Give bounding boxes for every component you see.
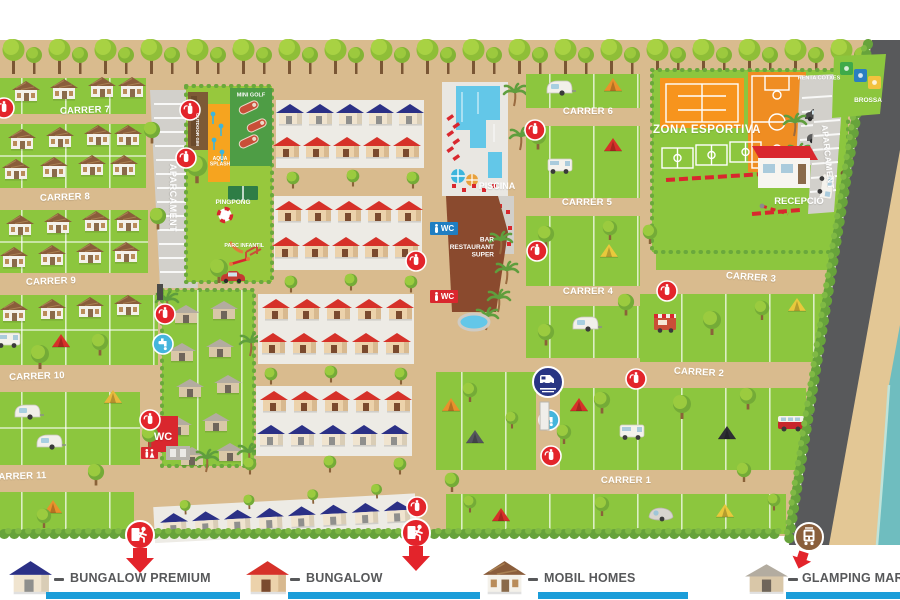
water-tap-icon: [153, 334, 173, 354]
parking-left-label: APARCAMENT: [168, 155, 178, 241]
kids-pool: [488, 152, 502, 178]
beach-ball: [219, 209, 232, 222]
brossa-label: BROSSA: [842, 96, 894, 104]
legend-label-glamping-mar: GLAMPING MAR: [802, 571, 900, 585]
fire-extinguisher-icon: [176, 148, 196, 168]
fire-extinguisher-icon: [527, 241, 547, 261]
aqua-splash-area: [208, 104, 230, 182]
piscina-label: PISCINA: [468, 181, 526, 191]
signpost: [540, 402, 549, 430]
wc-sign-red: WC: [430, 290, 458, 303]
street-label-carrer-5: CARRER 5: [552, 197, 622, 208]
pingpong-label: PINGPONG: [202, 198, 264, 206]
food-truck: [654, 314, 676, 333]
motorhome-service-icon: [533, 367, 563, 397]
fire-extinguisher-icon: [626, 369, 646, 389]
street-label-carrer-4: CARRER 4: [553, 286, 623, 297]
fire-extinguisher-icon: [155, 304, 175, 324]
recycling-bins: [832, 54, 886, 118]
renta-cotxes-label: RENTA COTXES: [796, 75, 842, 81]
person-icon: [434, 292, 439, 301]
legend-dash: [788, 578, 798, 581]
fire-extinguisher-icon: [406, 251, 426, 271]
emergency-exit-icon: [402, 519, 430, 547]
person-icon: [434, 224, 439, 233]
zona-esportiva-label: ZONA ESPORTIVA: [648, 124, 766, 136]
signpost: [157, 284, 163, 300]
street-label-carrer-1: CARRER 1: [591, 475, 661, 486]
street-label-carrer-6: CARRER 6: [553, 106, 623, 117]
legend-label-bungalow: BUNGALOW: [306, 571, 383, 585]
legend-label-bungalow-premium: BUNGALOW PREMIUM: [70, 571, 211, 585]
legend-icon-bungalow: [243, 558, 289, 598]
wc-label: WC: [441, 224, 454, 233]
legend-bar: [46, 592, 240, 599]
legend-label-mobil-homes: MOBIL HOMES: [544, 571, 636, 585]
legend-bar: [786, 592, 900, 599]
parc-infantil-label: PARC INFANTIL: [212, 243, 264, 249]
recepcio-label: RECEPCIÓ: [766, 196, 832, 207]
fire-extinguisher-icon: [407, 497, 427, 517]
legend-dash: [54, 578, 64, 581]
wc-building-label: WC: [149, 431, 177, 443]
bar-restaurant-label: BAR RESTAURANT SUPER: [438, 236, 494, 258]
beach-access-arrow: [126, 548, 154, 573]
legend-icon-mobil-homes: [480, 558, 526, 598]
wc-sign-blue: WC: [430, 222, 458, 235]
wc-figures-icon: [144, 449, 155, 458]
outdoor-gym-label: OUTDOOR GIM: [195, 112, 200, 147]
fire-extinguisher-icon: [140, 410, 160, 430]
mini-golf-label: MINI GOLF: [228, 92, 274, 98]
tram-stop-icon: [795, 523, 823, 551]
aqua-splash-label: AQUA SPLASH: [207, 156, 233, 167]
wc-label: WC: [441, 292, 454, 301]
tram-stop-arrow: [789, 549, 813, 572]
fire-extinguisher-icon: [525, 120, 545, 140]
pond: [459, 314, 489, 330]
beach-access-arrow: [402, 546, 430, 571]
wc-pictogram-sign: [141, 447, 158, 459]
legend-bar: [538, 592, 688, 599]
fire-extinguisher-icon: [657, 281, 677, 301]
emergency-exit-icon: [126, 521, 154, 549]
legend-dash: [528, 578, 538, 581]
fire-extinguisher-icon: [541, 446, 561, 466]
legend-icon-glamping-mar: [742, 558, 788, 598]
campsite-map-page: CARRER 7 CARRER 8 CARRER 9 CARRER 10 CAR…: [0, 0, 900, 600]
legend-bar: [288, 592, 480, 599]
fire-extinguisher-icon: [0, 98, 14, 118]
legend-dash: [290, 578, 300, 581]
